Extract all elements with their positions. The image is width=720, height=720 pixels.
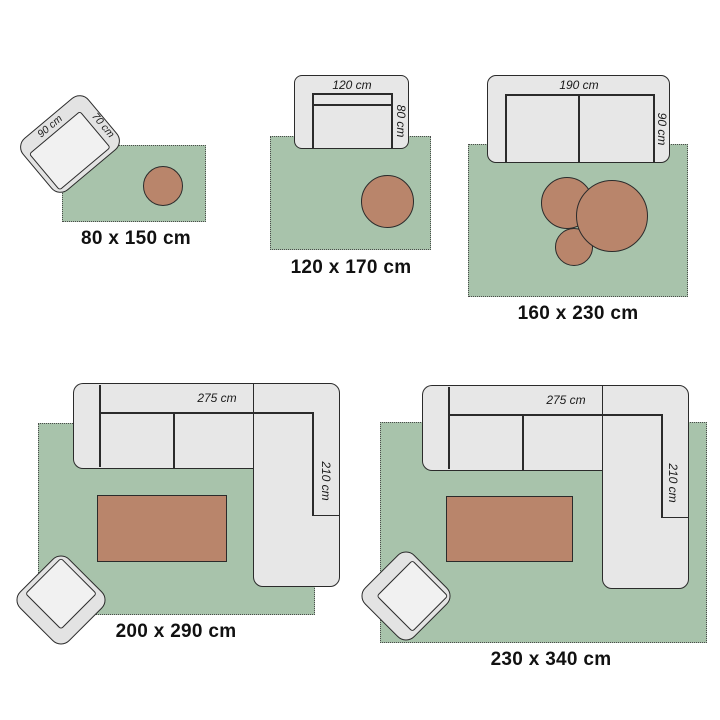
- size-label-200x290: 200 x 290 cm: [116, 621, 237, 643]
- dim-label-sofa-width: 190 cm: [559, 79, 598, 91]
- sofa-seat-top-line: [505, 94, 654, 96]
- sofa-arm-line: [312, 93, 314, 148]
- size-label-120x170: 120 x 170 cm: [291, 257, 412, 279]
- chaise-inner-line-v: [661, 414, 663, 518]
- chaise-inner-line-v: [312, 412, 314, 516]
- sofa-seat-divider: [522, 414, 524, 470]
- size-label-230x340: 230 x 340 cm: [491, 649, 612, 671]
- dim-label-sofa-depth: 210 cm: [667, 463, 679, 502]
- sofa-backrest-line: [99, 412, 313, 414]
- sofa-arm-line: [99, 385, 101, 467]
- dim-label-sofa-width: 275 cm: [197, 392, 236, 404]
- sofa-backrest-line: [448, 414, 662, 416]
- sofa-arm-line: [448, 387, 450, 469]
- sofa-190: 190 cm 90 cm: [487, 75, 670, 163]
- sofa-seat-divider: [173, 412, 175, 468]
- dim-label-sofa-depth: 90 cm: [656, 113, 668, 146]
- chaise-inner-line-h: [661, 517, 688, 519]
- chaise-inner-line-h: [312, 515, 339, 517]
- sofa-arm-line: [505, 94, 507, 162]
- sofa-arm-line: [391, 93, 393, 148]
- size-label-80x150: 80 x 150 cm: [81, 228, 191, 250]
- dim-label-sofa-depth: 210 cm: [320, 461, 332, 500]
- sofa-backrest-line: [312, 104, 392, 106]
- rug-size-guide-diagram: 90 cm 70 cm 80 x 150 cm 120 cm 80 cm 120…: [0, 0, 720, 720]
- dim-label-sofa-depth: 80 cm: [395, 105, 407, 138]
- sofa-seat-top-line: [312, 93, 392, 95]
- side-table: [143, 166, 183, 206]
- sofa-120: 120 cm 80 cm: [294, 75, 409, 149]
- coffee-table: [97, 495, 227, 562]
- dim-label-sofa-width: 275 cm: [546, 394, 585, 406]
- sofa-seat-divider: [578, 94, 580, 162]
- nesting-table-large: [576, 180, 648, 252]
- size-label-160x230: 160 x 230 cm: [518, 303, 639, 325]
- dim-label-sofa-width: 120 cm: [332, 79, 371, 91]
- side-table: [361, 175, 414, 228]
- coffee-table: [446, 496, 573, 562]
